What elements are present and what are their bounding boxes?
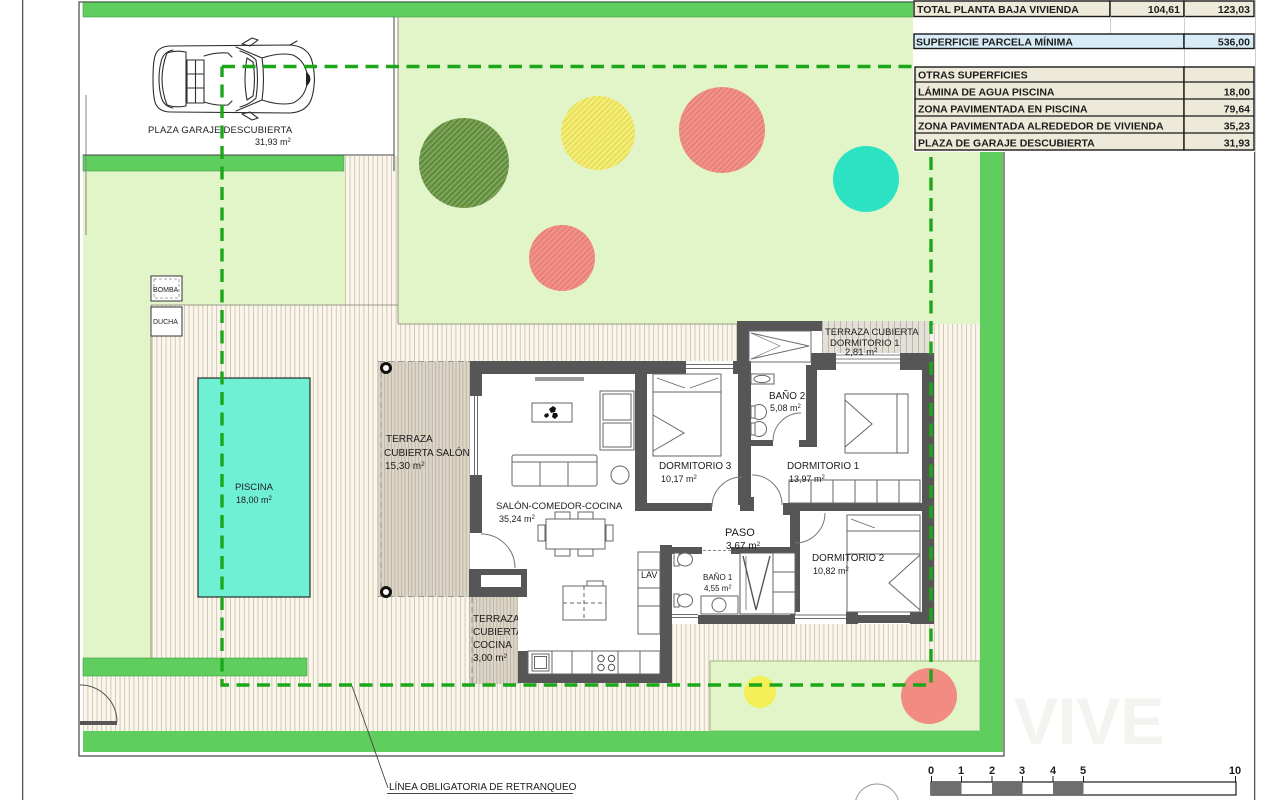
svg-text:DUCHA: DUCHA (153, 319, 178, 326)
svg-text:18,00: 18,00 (1224, 87, 1250, 99)
svg-text:13,97 m2: 13,97 m2 (789, 474, 826, 484)
svg-text:TERRAZA: TERRAZA (386, 434, 433, 445)
svg-text:ZONA PAVIMENTADA EN PISCINA: ZONA PAVIMENTADA EN PISCINA (918, 104, 1088, 116)
svg-text:1: 1 (958, 765, 964, 777)
svg-text:CUBIERTA: CUBIERTA (473, 627, 523, 638)
svg-text:2,81 m2: 2,81 m2 (845, 347, 878, 358)
svg-text:3: 3 (1019, 765, 1025, 777)
svg-text:OTRAS SUPERFICIES: OTRAS SUPERFICIES (918, 70, 1028, 82)
svg-text:2: 2 (989, 765, 995, 777)
svg-text:CUBIERTA SALÓN: CUBIERTA SALÓN (384, 446, 470, 459)
svg-text:536,00: 536,00 (1218, 37, 1250, 49)
svg-text:LÍNEA OBLIGATORIA DE RETRANQUE: LÍNEA OBLIGATORIA DE RETRANQUEO (389, 780, 577, 793)
svg-text:18,00 m2: 18,00 m2 (236, 495, 273, 505)
svg-text:DORMITORIO 2: DORMITORIO 2 (812, 553, 884, 564)
svg-text:15,30 m2: 15,30 m2 (385, 461, 425, 472)
svg-text:TOTAL PLANTA BAJA VIVIENDA: TOTAL PLANTA BAJA VIVIENDA (917, 4, 1079, 16)
svg-text:DORMITORIO 1: DORMITORIO 1 (787, 461, 860, 472)
svg-text:35,23: 35,23 (1224, 121, 1250, 133)
svg-text:10,17 m2: 10,17 m2 (661, 474, 698, 484)
svg-text:4,55 m2: 4,55 m2 (704, 584, 732, 593)
svg-text:VIVE: VIVE (1014, 684, 1164, 758)
svg-text:4: 4 (1050, 765, 1057, 777)
svg-text:ZONA PAVIMENTADA ALREDEDOR DE: ZONA PAVIMENTADA ALREDEDOR DE VIVIENDA (918, 121, 1164, 133)
svg-text:5: 5 (1080, 765, 1086, 777)
svg-text:PLAZA DE GARAJE DESCUBIERTA: PLAZA DE GARAJE DESCUBIERTA (918, 138, 1095, 150)
svg-text:31,93 m2: 31,93 m2 (255, 137, 292, 147)
svg-text:123,03: 123,03 (1218, 4, 1250, 16)
svg-text:31,93: 31,93 (1224, 138, 1250, 150)
svg-text:PISCINA: PISCINA (235, 482, 274, 493)
svg-text:BAÑO 2: BAÑO 2 (769, 391, 805, 402)
svg-text:10: 10 (1229, 765, 1241, 777)
svg-text:10,82 m2: 10,82 m2 (813, 566, 850, 576)
svg-text:3,00 m2: 3,00 m2 (473, 653, 508, 664)
svg-text:3,67 m2: 3,67 m2 (726, 541, 761, 552)
svg-text:LÁMINA DE AGUA PISCINA: LÁMINA DE AGUA PISCINA (918, 86, 1055, 99)
svg-text:79,64: 79,64 (1224, 104, 1250, 116)
svg-text:LAV: LAV (641, 570, 657, 580)
svg-text:BAÑO 1: BAÑO 1 (703, 573, 733, 582)
svg-text:TERRAZA: TERRAZA (473, 614, 520, 625)
svg-text:SALÓN-COMEDOR-COCINA: SALÓN-COMEDOR-COCINA (496, 501, 623, 512)
svg-text:104,61: 104,61 (1148, 4, 1180, 16)
svg-text:COCINA: COCINA (473, 640, 512, 651)
svg-text:35,24 m2: 35,24 m2 (499, 514, 536, 524)
svg-text:DORMITORIO 3: DORMITORIO 3 (659, 461, 732, 472)
svg-text:BOMBA: BOMBA (153, 287, 179, 294)
svg-text:PASO: PASO (725, 527, 755, 539)
svg-text:5,08 m2: 5,08 m2 (770, 403, 802, 413)
svg-text:0: 0 (928, 765, 934, 777)
svg-text:SUPERFICIE PARCELA MÍNIMA: SUPERFICIE PARCELA MÍNIMA (916, 36, 1073, 49)
svg-text:TERRAZA CUBIERTA: TERRAZA CUBIERTA (825, 327, 919, 338)
